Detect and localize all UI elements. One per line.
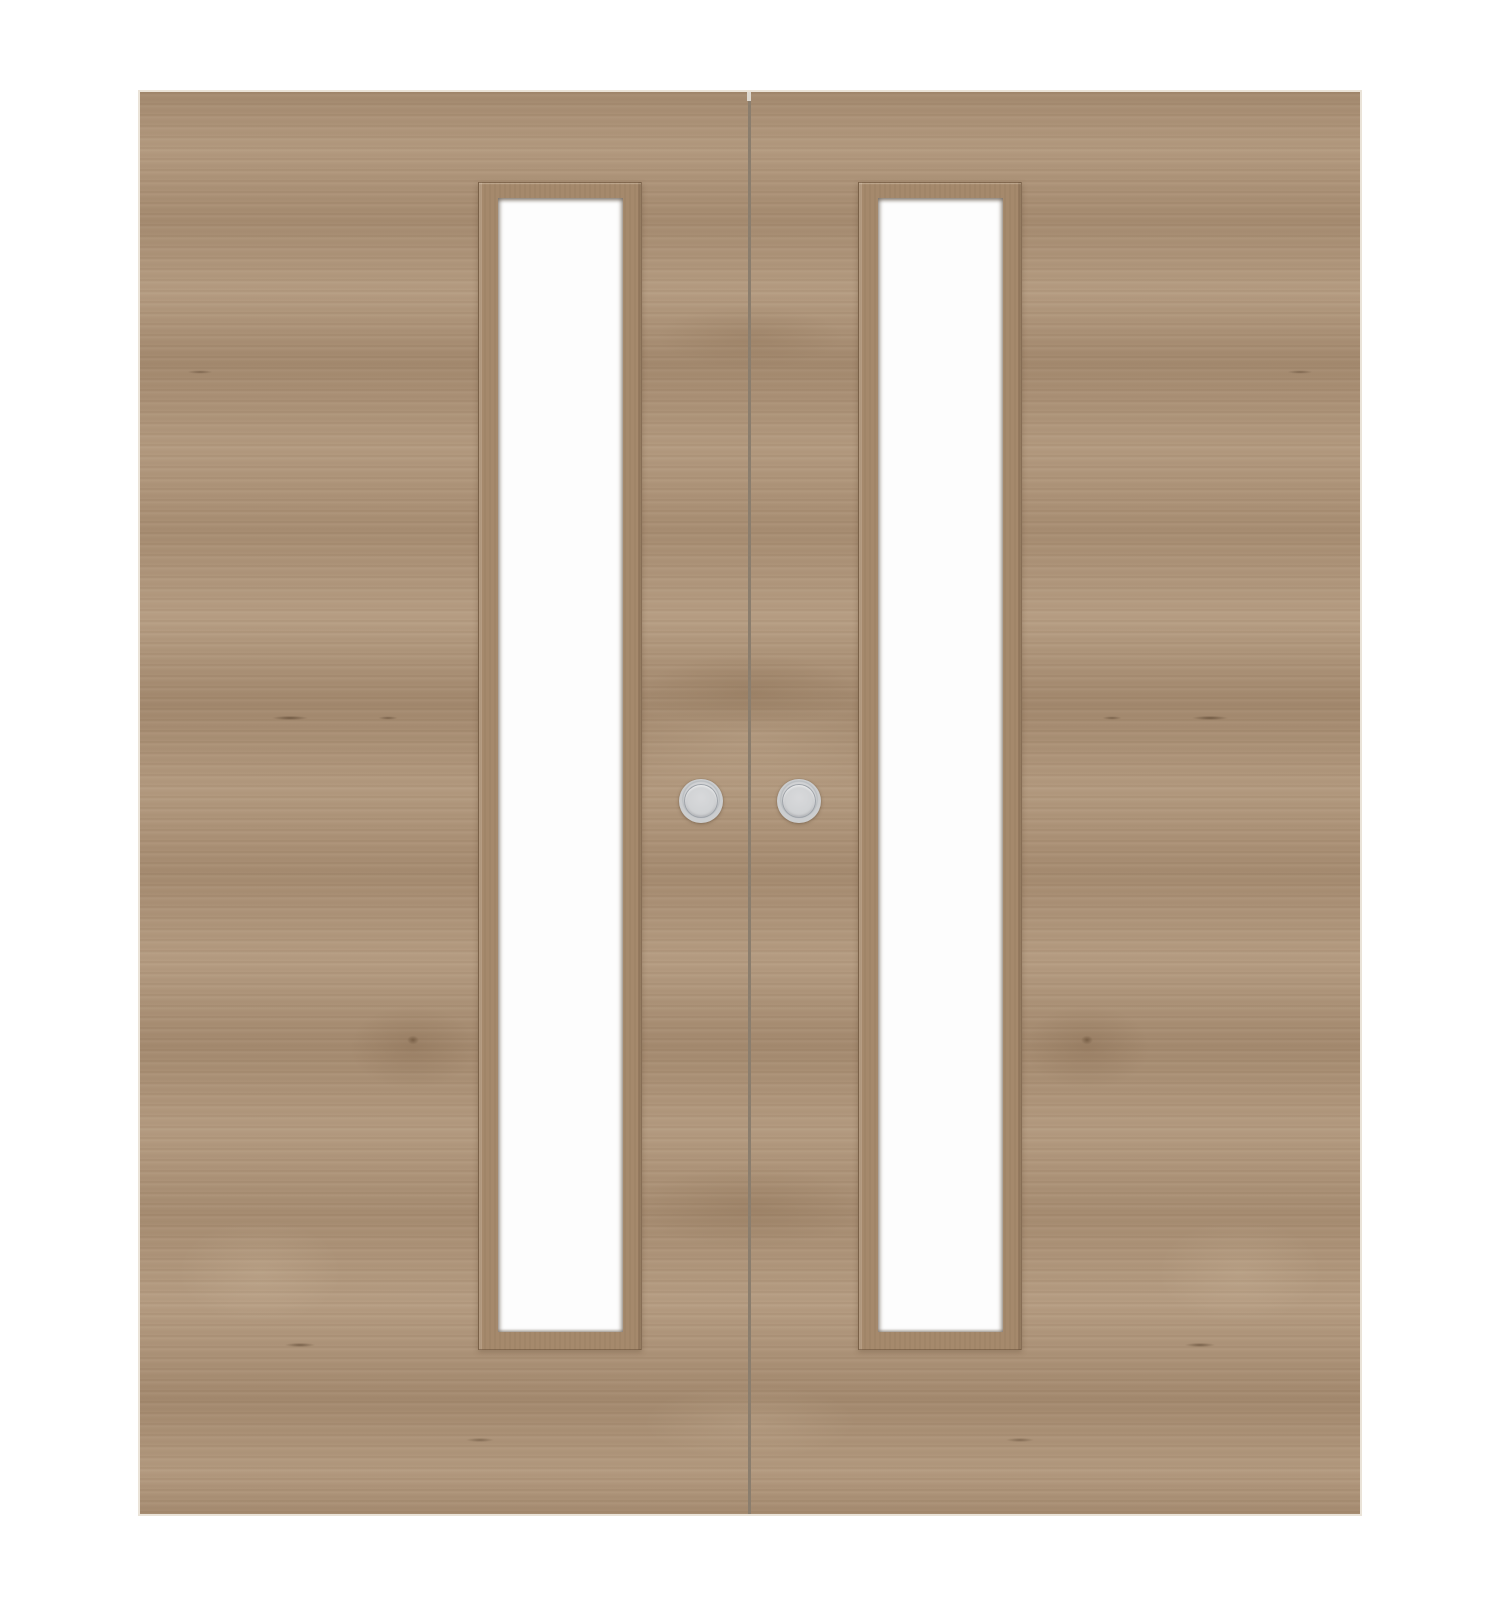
door-left-glazing-frame <box>478 182 642 1350</box>
door-left-glass-panel <box>498 198 623 1332</box>
door-right-wood-face <box>751 92 1360 1514</box>
product-image <box>0 0 1500 1617</box>
door-left-handle-recess <box>684 784 718 818</box>
door-right <box>751 92 1360 1514</box>
door-right-glazing-frame <box>858 182 1022 1350</box>
door-right-handle-recess <box>782 784 816 818</box>
double-doors-assembly <box>140 92 1360 1514</box>
door-left <box>140 92 748 1514</box>
door-left-wood-face <box>140 92 748 1514</box>
door-left-flush-pull-handle <box>679 779 723 823</box>
door-right-flush-pull-handle <box>777 779 821 823</box>
door-right-glass-panel <box>878 198 1003 1332</box>
